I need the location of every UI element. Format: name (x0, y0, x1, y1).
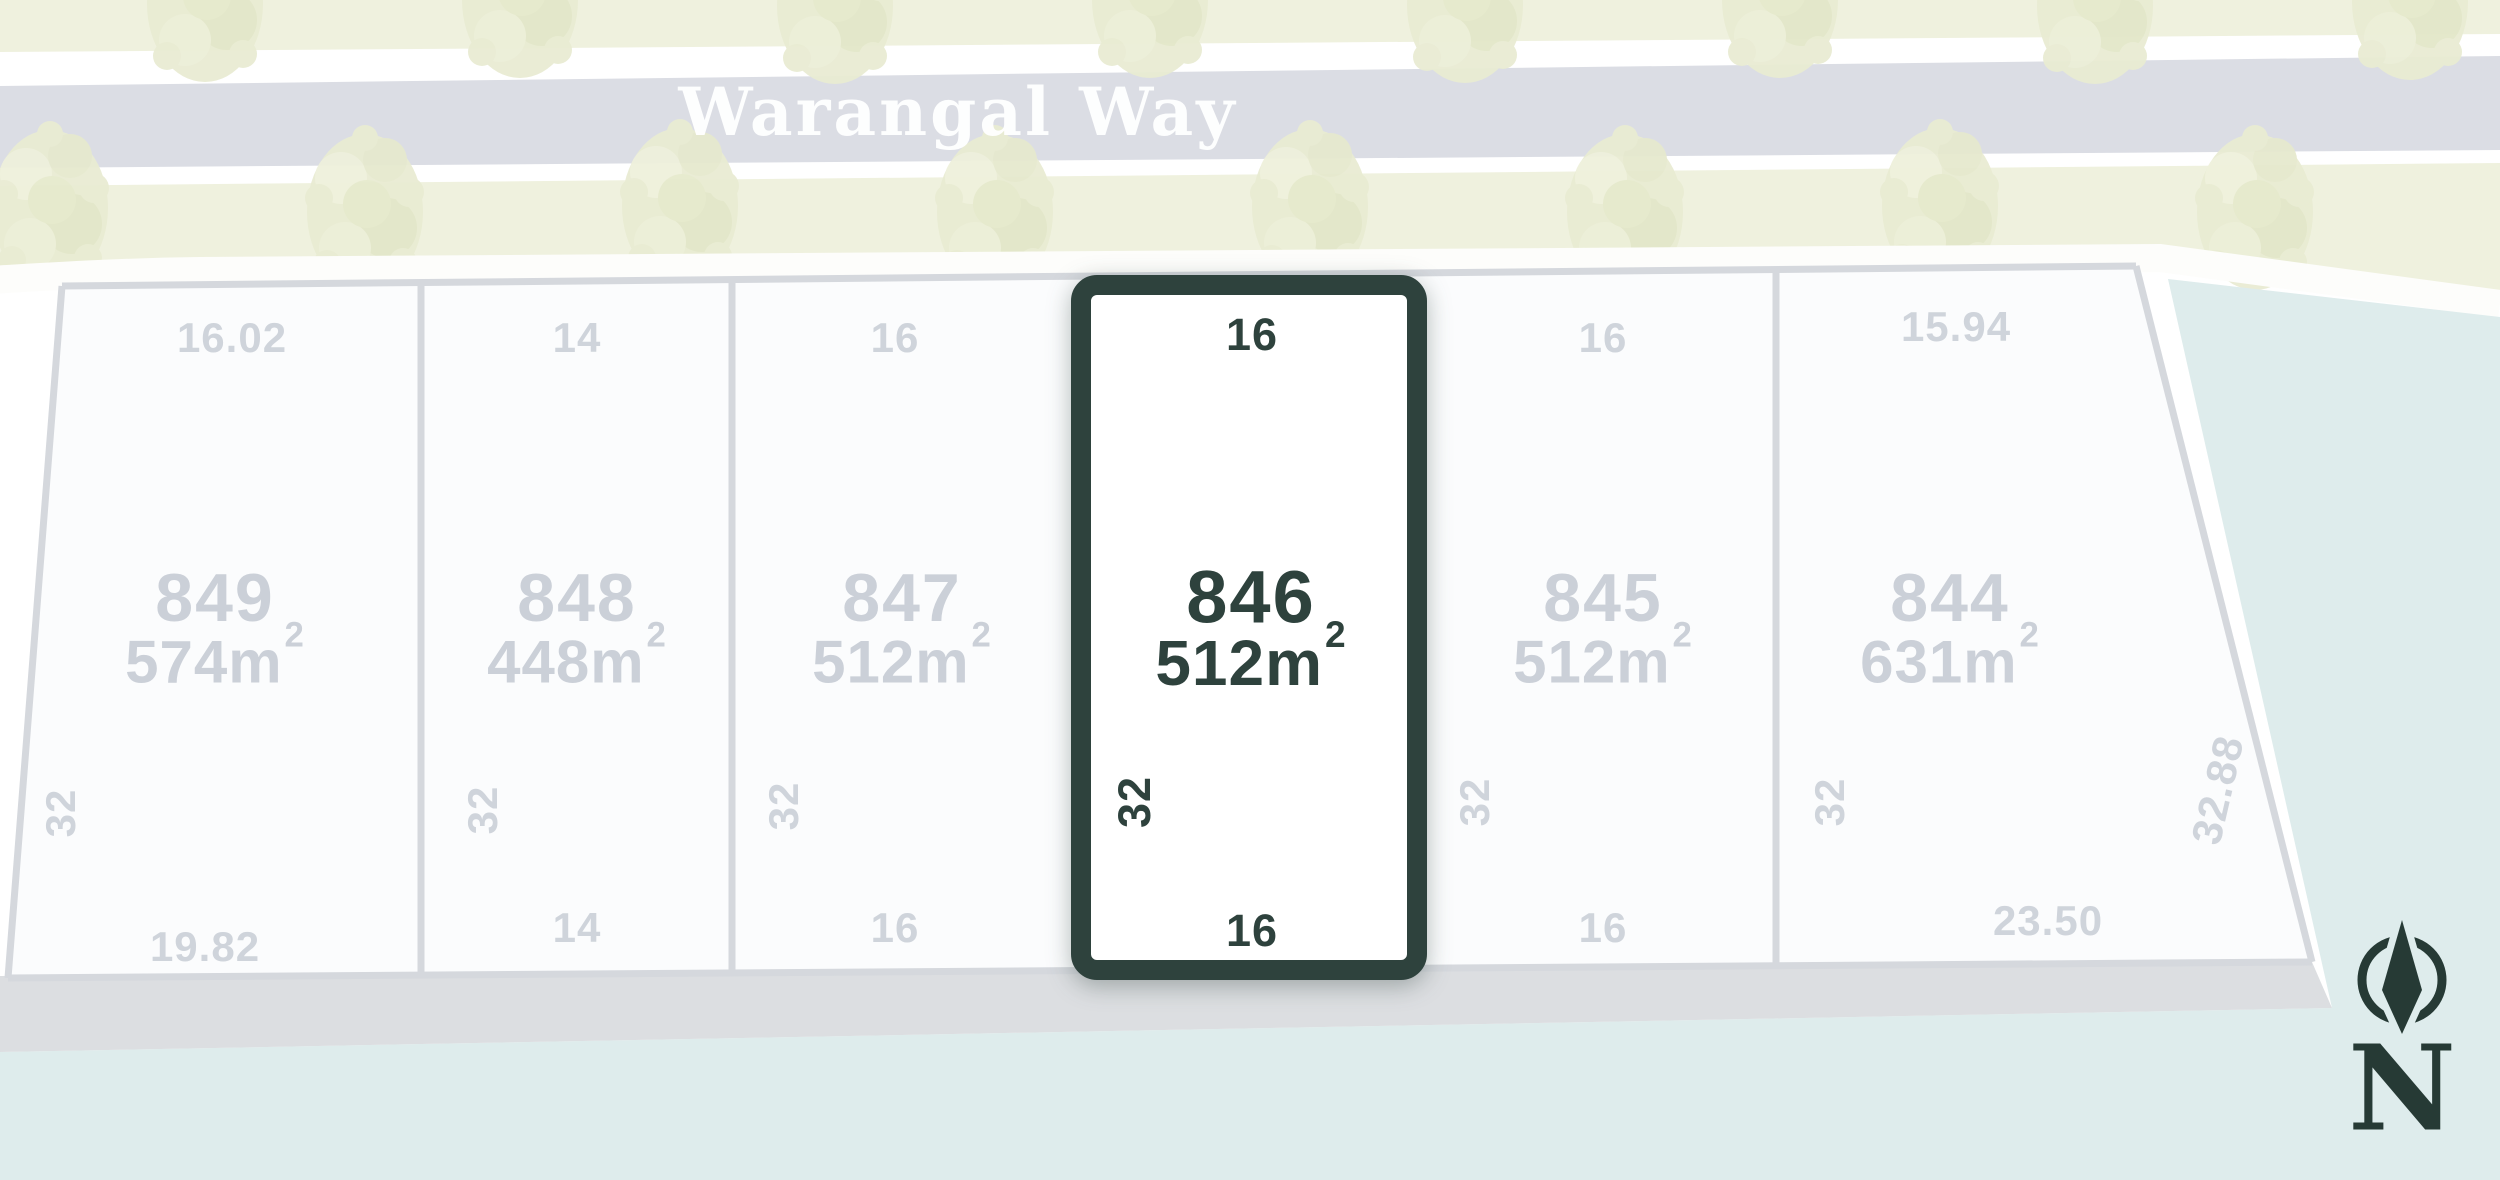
lot-846-area: 512m2 (1155, 626, 1346, 700)
lot-844-frontage-dim: 15.94 (1901, 303, 2011, 351)
area-sup: 2 (1673, 616, 1693, 655)
area-value: 448 (487, 629, 590, 696)
lot-849-depth-dim: 32 (37, 789, 85, 838)
lot-844-number: 844 (1890, 559, 2009, 637)
lot-845-frontage-dim: 16 (1579, 314, 1628, 362)
area-sup: 2 (972, 616, 992, 655)
area-value: 574 (125, 629, 228, 696)
area-unit: m (228, 629, 282, 696)
area-sup: 2 (285, 616, 305, 655)
area-unit: m (1616, 629, 1670, 696)
lot-845-rear-dim: 16 (1579, 904, 1628, 952)
lot-846-rear-dim: 16 (1226, 905, 1278, 957)
lot-847-rear-dim: 16 (871, 904, 920, 952)
lot-846-frontage-dim: 16 (1226, 309, 1278, 361)
area-sup: 2 (1325, 613, 1347, 655)
lot-847-depth-dim: 32 (760, 782, 808, 831)
lot-848-rear-dim: 14 (553, 904, 602, 952)
lot-848-depth-dim: 32 (459, 786, 507, 835)
lot-845-number: 845 (1543, 559, 1662, 637)
lot-849-area: 574m2 (125, 628, 305, 697)
area-value: 512 (1513, 629, 1616, 696)
lot-846-depth-dim: 32 (1109, 776, 1161, 828)
lot-847-area: 512m2 (812, 628, 992, 697)
street-name-label: Warangal Way (678, 73, 1237, 151)
lot-848-number: 848 (517, 559, 636, 637)
lot-848-area: 448m2 (487, 628, 667, 697)
lot-849-number: 849 (155, 559, 274, 637)
area-unit: m (915, 629, 969, 696)
subdivision-plan-canvas: Warangal Way 16.02 849 574m2 19.82 32 14… (0, 0, 2500, 1180)
lot-844-area: 631m2 (1860, 628, 2040, 697)
area-sup: 2 (647, 616, 667, 655)
lot-847-number: 847 (842, 559, 961, 637)
area-value: 512 (812, 629, 915, 696)
lot-847-frontage-dim: 16 (871, 314, 920, 362)
lot-844-depth-dim: 32 (1806, 778, 1854, 827)
lot-849-frontage-dim: 16.02 (177, 314, 287, 362)
lot-845-depth-dim: 32 (1451, 778, 1499, 827)
lot-848-frontage-dim: 14 (553, 314, 602, 362)
lot-849-rear-dim: 19.82 (150, 923, 260, 971)
area-sup: 2 (2020, 616, 2040, 655)
area-value: 631 (1860, 629, 1963, 696)
lot-844-rear-dim: 23.50 (1993, 897, 2103, 945)
lot-845-area: 512m2 (1513, 628, 1693, 697)
area-unit: m (590, 629, 644, 696)
area-unit: m (1963, 629, 2017, 696)
area-unit: m (1265, 627, 1323, 699)
compass-north-label: N (2348, 1019, 2456, 1158)
area-value: 512 (1155, 627, 1265, 699)
